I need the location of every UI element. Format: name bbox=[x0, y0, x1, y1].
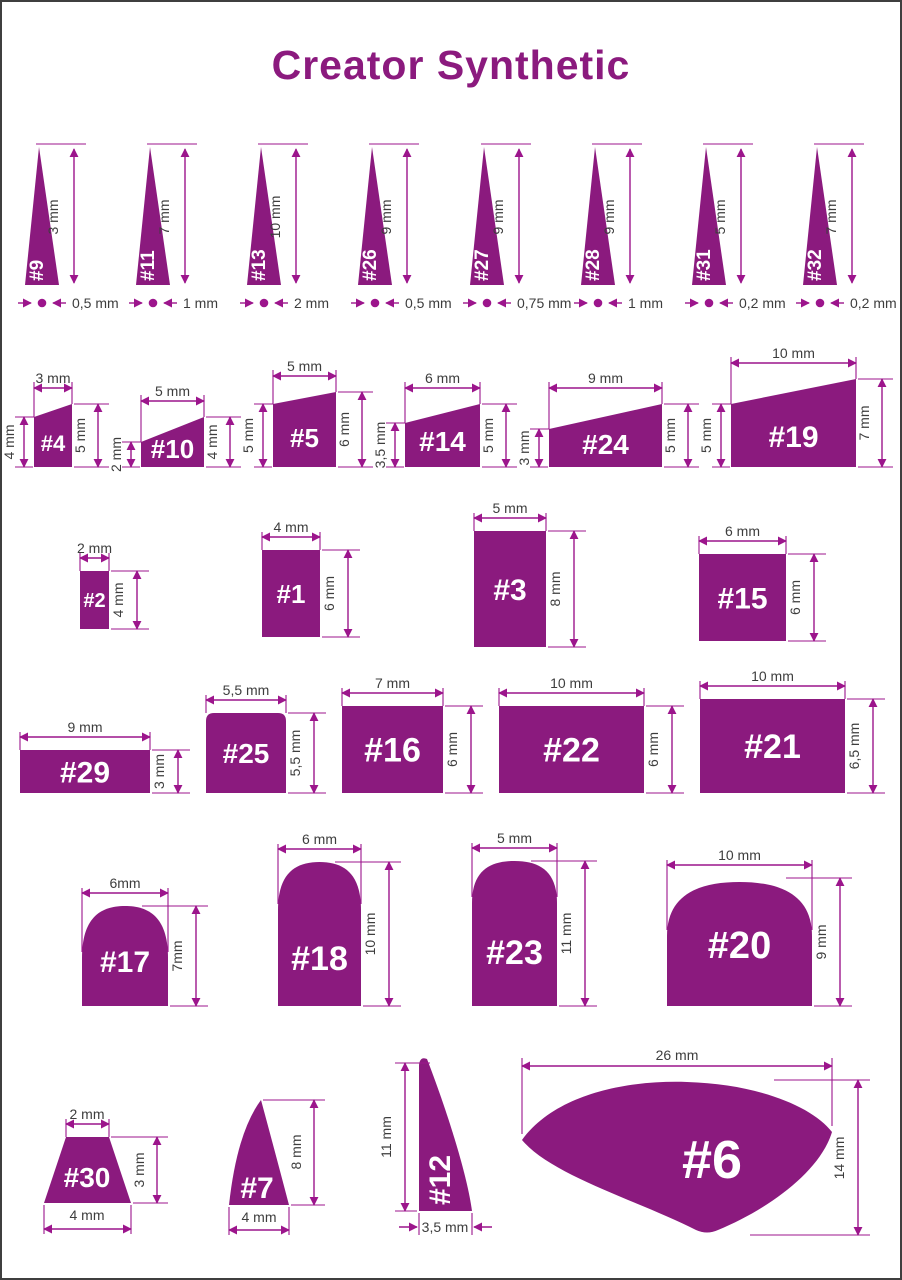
brush-shape bbox=[278, 862, 361, 1006]
brush-number: #25 bbox=[223, 738, 270, 769]
brush-number: #19 bbox=[768, 421, 818, 454]
brush-22: 10 mm6 mm#22 bbox=[497, 676, 698, 797]
width-label: 5 mm bbox=[492, 500, 527, 516]
brush-number: #23 bbox=[486, 934, 543, 972]
page-title: Creator Synthetic bbox=[2, 42, 900, 89]
tip-width-dot bbox=[260, 299, 269, 308]
brush-21: 10 mm6,5 mm#21 bbox=[698, 669, 899, 797]
tip-width-dot bbox=[149, 299, 158, 308]
width-label: 0,2 mm bbox=[739, 295, 786, 311]
brush-number: #22 bbox=[543, 732, 600, 770]
brush-number: #5 bbox=[290, 423, 319, 453]
brush-9: 3 mm#90,5 mm bbox=[12, 133, 112, 321]
brush-20: 10 mm9 mm#20 bbox=[665, 848, 866, 1010]
height-label: 9 mm bbox=[490, 200, 506, 235]
brush-number: #12 bbox=[424, 1155, 457, 1205]
brush-3: 5 mm8 mm#3 bbox=[472, 501, 600, 651]
brush-number: #1 bbox=[277, 579, 306, 609]
width-label: 9 mm bbox=[68, 719, 103, 735]
height-label: 3 mm bbox=[151, 754, 167, 789]
row-round-top-brushes: 6mm7mm#176 mm10 mm#185 mm11 mm#2310 mm9 … bbox=[80, 831, 866, 1010]
brush-number: #7 bbox=[240, 1172, 273, 1205]
brush-24: 9 mm3 mm5 mm#24 bbox=[521, 370, 702, 471]
brush-number: #29 bbox=[60, 756, 110, 789]
width-label: 1 mm bbox=[183, 295, 218, 311]
bottom-label: 4 mm bbox=[242, 1209, 277, 1225]
left-label: 3,5 mm bbox=[372, 422, 388, 469]
width-label: 1 mm bbox=[628, 295, 663, 311]
height-label: 7 mm bbox=[823, 200, 839, 235]
brush-number: #20 bbox=[708, 925, 771, 967]
tip-width-dot bbox=[482, 299, 491, 308]
brush-number: #13 bbox=[249, 249, 270, 281]
height-label: 14 mm bbox=[831, 1137, 847, 1180]
brush-number: #32 bbox=[805, 249, 826, 281]
left-label: 5 mm bbox=[240, 418, 256, 453]
width-label: 2 mm bbox=[294, 295, 329, 311]
brush-number: #24 bbox=[582, 429, 629, 460]
right-label: 5 mm bbox=[662, 418, 678, 453]
brush-number: #4 bbox=[41, 431, 66, 456]
right-label: 5 mm bbox=[72, 418, 88, 453]
width-label: 6 mm bbox=[302, 831, 337, 847]
brush-number: #30 bbox=[64, 1162, 111, 1193]
width-label: 10 mm bbox=[751, 668, 794, 684]
left-label: 4 mm bbox=[1, 425, 17, 460]
height-label: 8 mm bbox=[288, 1135, 304, 1170]
right-label: 7 mm bbox=[856, 406, 872, 441]
page: Creator Synthetic 3 mm#90,5 mm7 mm#111 m… bbox=[0, 0, 902, 1280]
height-label: 4 mm bbox=[110, 583, 126, 618]
bottom-label: 3,5 mm bbox=[422, 1219, 469, 1235]
brush-number: #21 bbox=[744, 728, 801, 766]
brush-number: #26 bbox=[360, 249, 381, 281]
brush-23: 5 mm11 mm#23 bbox=[470, 831, 611, 1010]
brush-14: 6 mm3,5 mm5 mm#14 bbox=[377, 370, 520, 471]
brush-27: 9 mm#270,75 mm bbox=[457, 133, 557, 321]
height-label: 6 mm bbox=[787, 580, 803, 615]
top-label: 6 mm bbox=[425, 370, 460, 386]
brush-26: 9 mm#260,5 mm bbox=[345, 133, 445, 321]
height-label: 5,5 mm bbox=[287, 730, 303, 777]
width-label: 0,5 mm bbox=[72, 295, 119, 311]
right-label: 5 mm bbox=[480, 418, 496, 453]
brush-2: 2 mm4 mm#2 bbox=[78, 541, 163, 633]
height-label: 3 mm bbox=[45, 200, 61, 235]
width-label: 0,2 mm bbox=[850, 295, 897, 311]
brush-number: #18 bbox=[291, 940, 348, 978]
height-label: 7 mm bbox=[156, 200, 172, 235]
row-angular-brushes: 3 mm4 mm5 mm#45 mm2 mm4 mm#105 mm5 mm6 m… bbox=[6, 345, 896, 471]
brush-number: #3 bbox=[493, 574, 526, 607]
width-label: 0,75 mm bbox=[517, 295, 571, 311]
brush-5: 5 mm5 mm6 mm#5 bbox=[245, 358, 376, 471]
top-label: 5 mm bbox=[155, 383, 190, 399]
tip-width-dot bbox=[705, 299, 714, 308]
brush-19: 10 mm5 mm7 mm#19 bbox=[703, 345, 896, 471]
brush-30: 2 mm3 mm4 mm#30 bbox=[44, 1107, 183, 1239]
top-label: 10 mm bbox=[772, 345, 815, 361]
row-special-brushes: 2 mm3 mm4 mm#308 mm4 mm#711 mm3,5 mm#122… bbox=[44, 1046, 884, 1239]
brush-29: 9 mm3 mm#29 bbox=[18, 720, 204, 797]
brush-17: 6mm7mm#17 bbox=[80, 876, 222, 1010]
tip-width-dot bbox=[38, 299, 47, 308]
brush-number: #17 bbox=[100, 946, 150, 979]
top-label: 5 mm bbox=[287, 358, 322, 374]
left-label: 5 mm bbox=[698, 418, 714, 453]
width-label: 0,5 mm bbox=[405, 295, 452, 311]
brush-16: 7 mm6 mm#16 bbox=[340, 676, 497, 797]
height-label: 8 mm bbox=[547, 572, 563, 607]
width-label: 10 mm bbox=[550, 675, 593, 691]
brush-shape bbox=[522, 1082, 832, 1233]
brush-number: #6 bbox=[682, 1130, 742, 1190]
height-label: 9 mm bbox=[601, 200, 617, 235]
top-label: 3 mm bbox=[36, 370, 71, 386]
brush-15: 6 mm6 mm#15 bbox=[697, 524, 840, 645]
left-label: 2 mm bbox=[108, 437, 124, 472]
width-label: 26 mm bbox=[656, 1047, 699, 1063]
width-label: 6 mm bbox=[725, 523, 760, 539]
brush-7: 8 mm4 mm#7 bbox=[229, 1096, 327, 1239]
bottom-label: 4 mm bbox=[70, 1207, 105, 1223]
height-label: 7mm bbox=[169, 940, 185, 971]
brush-number: #16 bbox=[364, 732, 421, 770]
height-label: 10 mm bbox=[362, 913, 378, 956]
height-label: 6 mm bbox=[321, 576, 337, 611]
brush-number: #28 bbox=[583, 249, 604, 281]
brush-number: #10 bbox=[151, 434, 194, 464]
width-label: 10 mm bbox=[718, 847, 761, 863]
right-label: 6 mm bbox=[336, 412, 352, 447]
brush-4: 3 mm4 mm5 mm#4 bbox=[6, 370, 112, 471]
brush-12: 11 mm3,5 mm#12 bbox=[373, 1055, 476, 1239]
tip-width-dot bbox=[816, 299, 825, 308]
row-flat-brushes-wide: 9 mm3 mm#295,5 mm5,5 mm#257 mm6 mm#1610 … bbox=[18, 669, 886, 797]
brush-31: 5 mm#310,2 mm bbox=[679, 133, 779, 321]
brush-number: #11 bbox=[138, 250, 159, 281]
brush-28: 9 mm#281 mm bbox=[568, 133, 668, 321]
height-label: 9 mm bbox=[813, 925, 829, 960]
brush-18: 6 mm10 mm#18 bbox=[276, 832, 415, 1010]
brush-1: 4 mm6 mm#1 bbox=[260, 520, 374, 641]
brush-number: #15 bbox=[717, 582, 767, 615]
width-label: 5,5 mm bbox=[223, 682, 270, 698]
brush-32: 7 mm#320,2 mm bbox=[790, 133, 890, 321]
brush-6: 26 mm14 mm#6 bbox=[522, 1046, 884, 1239]
left-label: 3 mm bbox=[516, 431, 532, 466]
height-label: 3 mm bbox=[131, 1153, 147, 1188]
tip-width-dot bbox=[371, 299, 380, 308]
height-label: 11 mm bbox=[378, 1116, 394, 1158]
brush-10: 5 mm2 mm4 mm#10 bbox=[113, 383, 244, 471]
brush-25: 5,5 mm5,5 mm#25 bbox=[204, 683, 340, 797]
brush-number: #31 bbox=[694, 249, 715, 281]
height-label: 6 mm bbox=[444, 732, 460, 767]
width-label: 6mm bbox=[109, 875, 140, 891]
brush-number: #14 bbox=[419, 426, 466, 457]
height-label: 9 mm bbox=[378, 200, 394, 235]
top-label: 9 mm bbox=[588, 370, 623, 386]
height-label: 5 mm bbox=[712, 200, 728, 235]
width-label: 7 mm bbox=[375, 675, 410, 691]
row-liner-brushes: 3 mm#90,5 mm7 mm#111 mm10 mm#132 mm9 mm#… bbox=[12, 133, 890, 321]
brush-11: 7 mm#111 mm bbox=[123, 133, 223, 321]
height-label: 11 mm bbox=[558, 913, 574, 955]
top-label: 2 mm bbox=[70, 1106, 105, 1122]
brush-13: 10 mm#132 mm bbox=[234, 133, 334, 321]
brush-number: #27 bbox=[472, 249, 493, 281]
height-label: 10 mm bbox=[267, 196, 283, 239]
brush-number: #9 bbox=[27, 260, 48, 281]
right-label: 4 mm bbox=[204, 425, 220, 460]
width-label: 4 mm bbox=[274, 519, 309, 535]
height-label: 6,5 mm bbox=[846, 723, 862, 770]
tip-width-dot bbox=[593, 299, 602, 308]
height-label: 6 mm bbox=[645, 732, 661, 767]
brush-number: #2 bbox=[83, 590, 105, 612]
row-flat-brushes-small: 2 mm4 mm#24 mm6 mm#15 mm8 mm#36 mm6 mm#1… bbox=[78, 501, 840, 651]
width-label: 5 mm bbox=[497, 830, 532, 846]
width-label: 2 mm bbox=[77, 540, 112, 556]
